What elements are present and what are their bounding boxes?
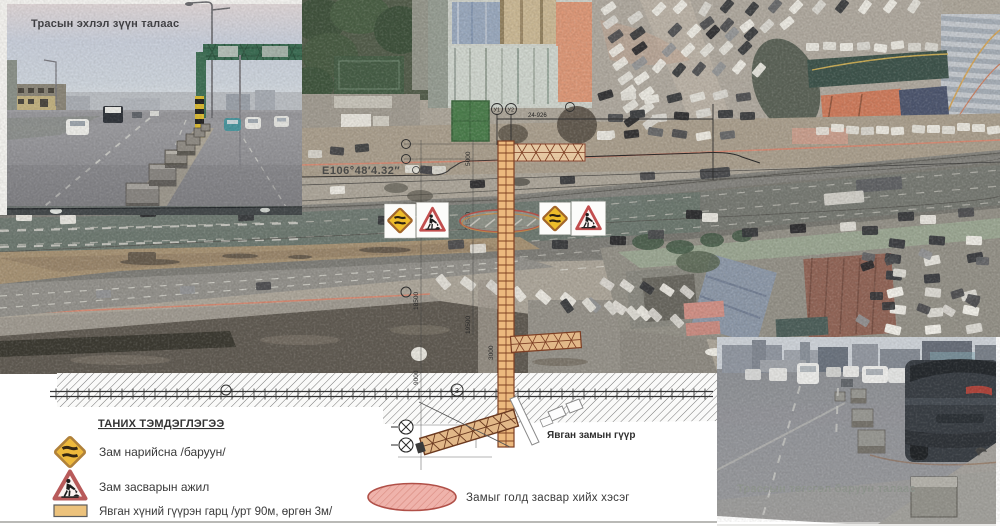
svg-text:24-926: 24-926: [528, 113, 547, 119]
svg-text:Замыг голд засвар хийх хэсэг: Замыг голд засвар хийх хэсэг: [466, 492, 630, 504]
svg-text:Явган замын гүүр: Явган замын гүүр: [547, 430, 635, 441]
svg-text:Зам засварын ажил: Зам засварын ажил: [99, 480, 209, 494]
svg-text:У1: У1: [494, 108, 501, 114]
svg-text:3000: 3000: [488, 345, 495, 360]
svg-text:Явган хүний гүүрэн гарц /урт 9: Явган хүний гүүрэн гарц /урт 90м, өргөн …: [99, 506, 333, 518]
svg-text:У2: У2: [508, 108, 515, 114]
svg-text:9000: 9000: [413, 370, 420, 385]
svg-text:3: 3: [455, 388, 459, 395]
svg-text:18500: 18500: [413, 292, 420, 310]
svg-text:5000: 5000: [465, 151, 472, 166]
svg-text:Зам нарийсна /баруун/: Зам нарийсна /баруун/: [99, 445, 226, 459]
svg-text:19500: 19500: [465, 316, 472, 334]
svg-text:ТАНИХ ТЭМДЭГЛЭГЭЭ: ТАНИХ ТЭМДЭГЛЭГЭЭ: [98, 418, 224, 430]
